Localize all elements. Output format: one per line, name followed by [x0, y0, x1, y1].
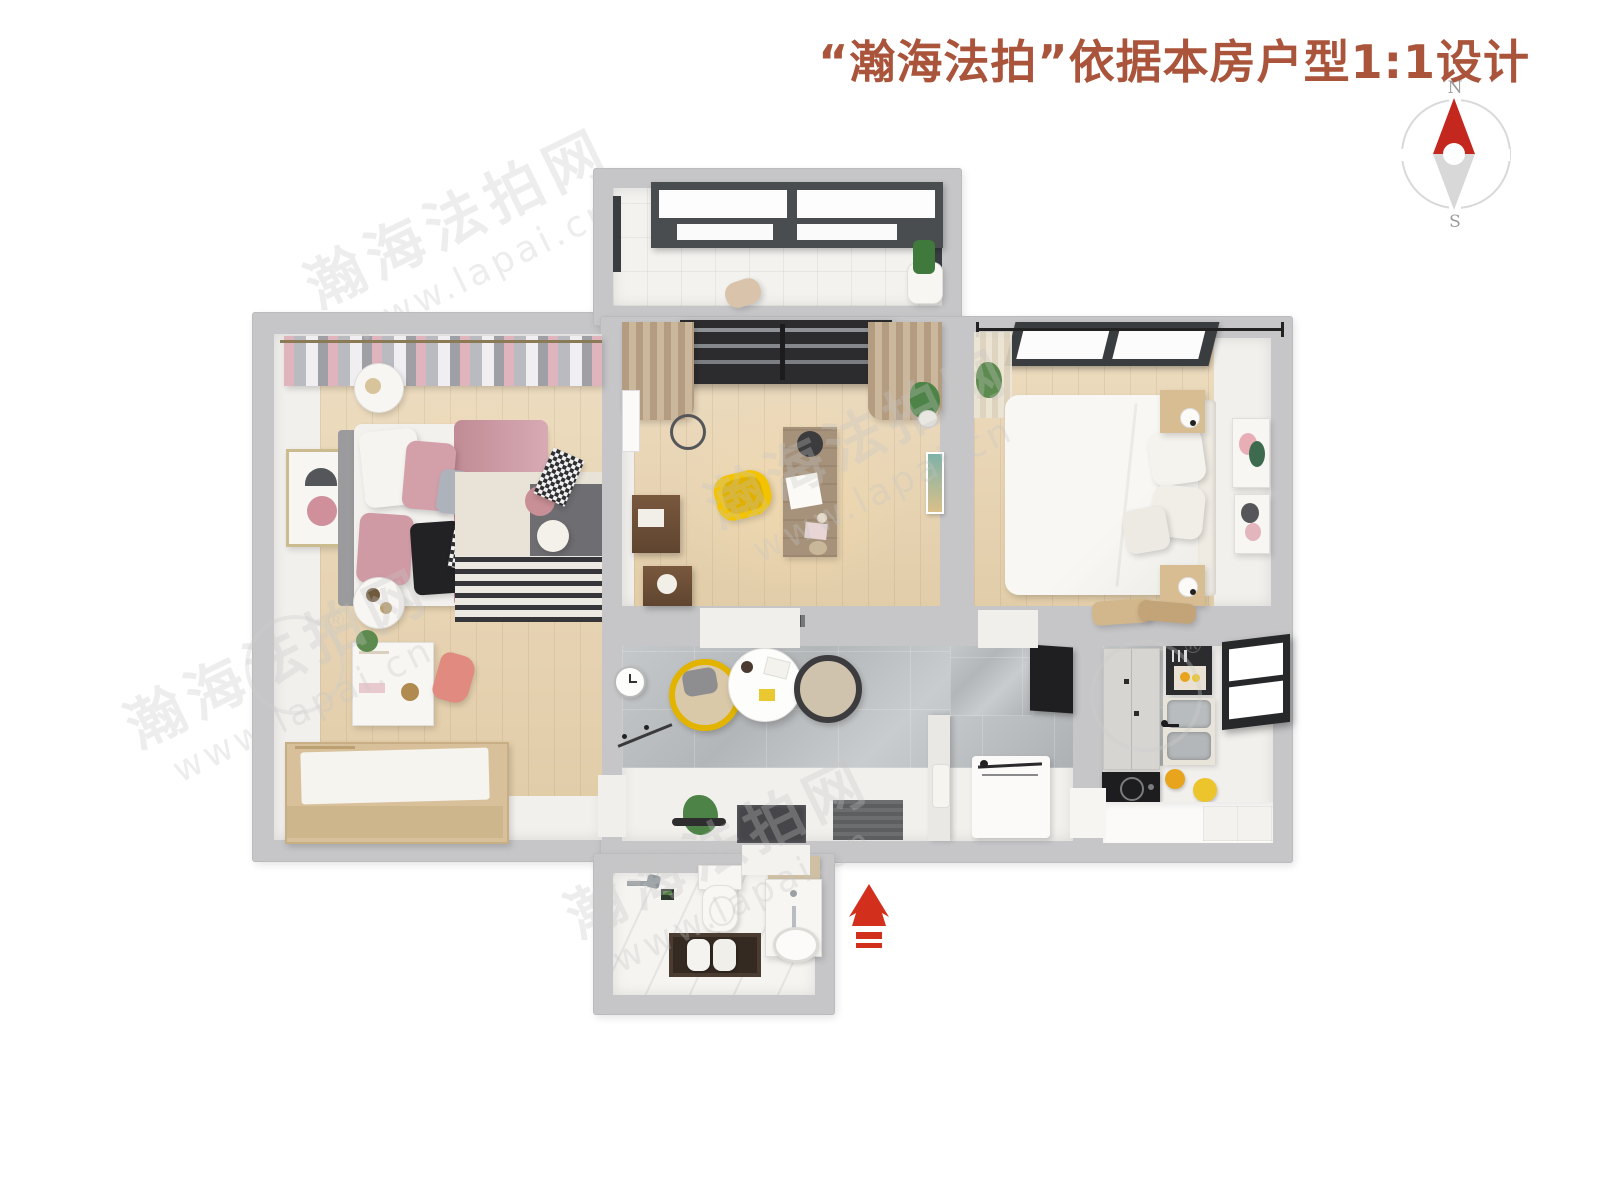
living-floor [622, 338, 940, 606]
pouf-dark-wire [794, 655, 862, 723]
wall-clock [614, 666, 646, 698]
washer-counter [972, 756, 1050, 838]
room-bathroom [593, 853, 835, 1015]
plant-pot-small [918, 410, 938, 428]
balcony-chair [722, 275, 764, 311]
bath-marble-wall [950, 646, 1032, 716]
watermark-brand: 瀚海法拍网 [289, 104, 622, 324]
sink-unit [1163, 698, 1215, 765]
orange-fruit [1165, 769, 1185, 789]
doorway-kitchen [1070, 788, 1106, 838]
plant-stand [672, 818, 726, 826]
wire-basket [670, 414, 706, 450]
kitchen-window [1222, 634, 1290, 730]
wall-art-2 [1234, 494, 1270, 554]
plant [976, 362, 1002, 398]
room-bedroom-left [252, 312, 624, 862]
dining-table-round [728, 648, 802, 722]
pillow [1147, 427, 1208, 488]
cabinet-dark [632, 495, 680, 553]
lemon-plate [1193, 778, 1217, 802]
cooktop [1102, 772, 1160, 802]
wall-art-right [926, 452, 944, 514]
doorway-bedroom-left [598, 775, 626, 837]
doormat-2 [833, 800, 903, 840]
balcony-floor [613, 188, 942, 306]
counter-white [1103, 802, 1273, 843]
skylight [651, 182, 943, 248]
curtain [284, 336, 602, 386]
doorway-bathroom [742, 845, 810, 875]
ball-lamp [537, 520, 569, 552]
nightstand-bottom [1160, 565, 1205, 606]
sink-basin [773, 927, 819, 963]
rug-striped [455, 556, 602, 622]
doorway-bedroom-right [978, 610, 1038, 648]
entrance-arrow-icon [843, 882, 895, 954]
cactus-plant [913, 240, 935, 274]
side-table-dark [643, 566, 692, 606]
utensil-board [1166, 646, 1212, 695]
wall-art-1 [1232, 418, 1270, 488]
room-balcony [593, 168, 962, 326]
leaning-canvas [622, 390, 640, 452]
curtain-rod [280, 340, 602, 343]
floor-plan-canvas: “瀚海法拍”依据本房户型1:1设计 N S [0, 0, 1600, 1200]
desk [783, 427, 837, 557]
towel-tray [669, 933, 761, 977]
entry-plant [683, 795, 718, 835]
doorway-living-hall [700, 608, 800, 648]
tall-cabinet [1103, 648, 1160, 770]
room-bedroom-right [952, 316, 1293, 628]
compass-needle [1385, 76, 1525, 236]
window-grid [680, 320, 892, 384]
hall-floor [622, 646, 1073, 841]
plant-small [356, 630, 378, 652]
doormat-1 [737, 805, 806, 843]
shower-head [646, 874, 661, 889]
toilet [702, 885, 738, 932]
compass-icon: N S [1385, 76, 1525, 236]
pillow-pink-2 [356, 512, 415, 586]
room-living [600, 316, 962, 628]
side-window-left [613, 196, 621, 272]
nightstand-round-top [354, 363, 404, 413]
wall-desk-unit [352, 642, 434, 726]
nightstand-round-bottom [353, 577, 405, 629]
pillow-small [1121, 505, 1172, 556]
room-kitchen [1080, 606, 1293, 863]
hanging-towel [932, 764, 950, 808]
bath-mirror [1030, 644, 1073, 713]
nightstand-top [1160, 390, 1205, 433]
platform-bed [285, 742, 509, 844]
bedroom-right-floor [974, 338, 1271, 606]
bedroom-left-floor [274, 334, 602, 840]
curtain-rod [976, 328, 1284, 331]
soap-box [661, 889, 674, 900]
